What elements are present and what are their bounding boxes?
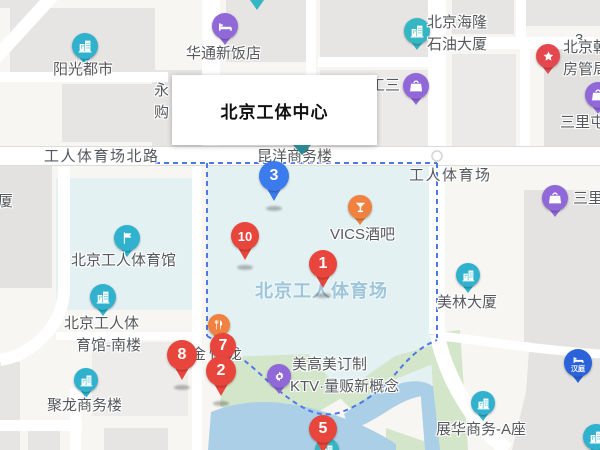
info-window-title: 北京工体中心	[221, 98, 329, 123]
building-icon	[72, 33, 98, 59]
building-icon	[456, 263, 480, 287]
marker-shadow	[266, 206, 282, 211]
info-window-pointer-icon	[293, 145, 311, 155]
building-icon	[471, 391, 495, 415]
building-icon	[74, 368, 98, 392]
building-icon	[90, 284, 116, 310]
poi-inner-text: 汉庭	[571, 366, 585, 373]
building-icon	[404, 18, 430, 44]
marker-number: 5	[309, 415, 337, 443]
marker-shadow	[213, 401, 229, 406]
map-canvas[interactable]: 工人体育场北路工人体育场北京工人体育场3厦永购昆洋商务楼金悦龙 阳光都市华通新饭…	[0, 0, 600, 450]
star-icon	[536, 44, 560, 68]
marker-number: 1	[309, 250, 337, 278]
marker-shadow	[174, 385, 190, 390]
bed-icon: 汉庭	[564, 349, 592, 377]
bed-icon	[212, 13, 238, 39]
flag-icon	[114, 225, 140, 251]
bag-icon	[403, 73, 429, 99]
gear-icon	[267, 364, 291, 388]
marker-shadow	[237, 265, 253, 270]
bag-icon	[542, 185, 568, 211]
marker-shadow	[315, 293, 331, 298]
info-window[interactable]: 北京工体中心	[172, 75, 377, 145]
marker-number: 8	[167, 340, 197, 370]
marker-number: 3	[259, 161, 289, 191]
marker-number: 10	[231, 222, 259, 250]
cocktail-icon	[348, 195, 372, 219]
marker-number: 2	[206, 356, 236, 386]
marker-number: 7	[210, 333, 236, 359]
